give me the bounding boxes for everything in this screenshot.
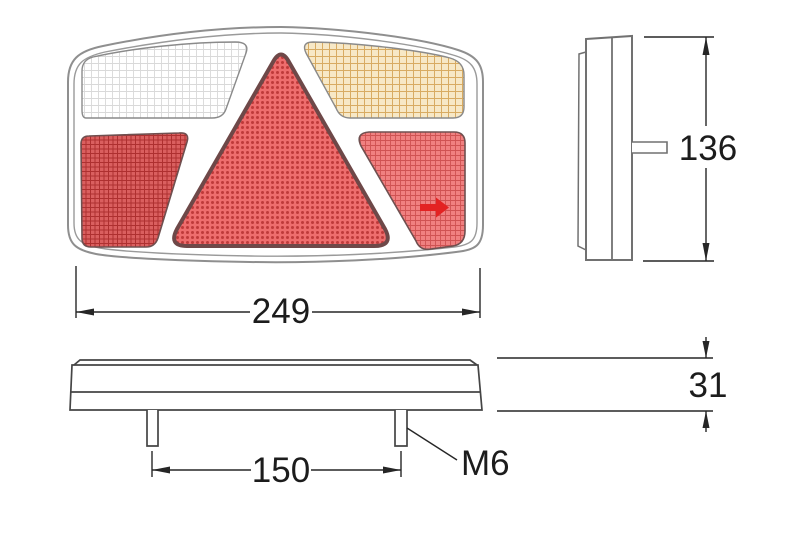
stud-thread-callout: M6 [407, 428, 510, 483]
arrowhead [462, 309, 480, 316]
arrowhead [703, 243, 710, 261]
stud-thread-value: M6 [461, 444, 510, 483]
arrowhead [703, 341, 710, 358]
leader-line [407, 428, 457, 460]
arrowhead [152, 467, 170, 474]
stud-spacing-value: 150 [252, 451, 310, 490]
lamp-dimension-drawing: 249 136 150 M6 [0, 0, 800, 534]
right-mounting-stud [395, 410, 407, 446]
side-view [578, 36, 667, 260]
front-view [68, 27, 483, 262]
side-mounting-stud [632, 142, 667, 153]
side-body [586, 36, 632, 260]
technical-drawing-canvas: 249 136 150 M6 [0, 0, 800, 534]
width-value: 249 [252, 292, 310, 331]
depth-dimension: 31 [497, 337, 727, 432]
side-lip [578, 52, 586, 250]
bottom-view [70, 360, 482, 446]
arrowhead [383, 467, 401, 474]
bottom-body [70, 365, 482, 410]
depth-value: 31 [689, 366, 728, 405]
stud-spacing-dimension: 150 [152, 451, 401, 490]
arrowhead [703, 37, 710, 55]
width-dimension: 249 [76, 266, 480, 331]
height-value: 136 [679, 129, 737, 168]
left-mounting-stud [147, 410, 158, 446]
arrowhead [703, 411, 710, 428]
arrowhead [76, 309, 94, 316]
